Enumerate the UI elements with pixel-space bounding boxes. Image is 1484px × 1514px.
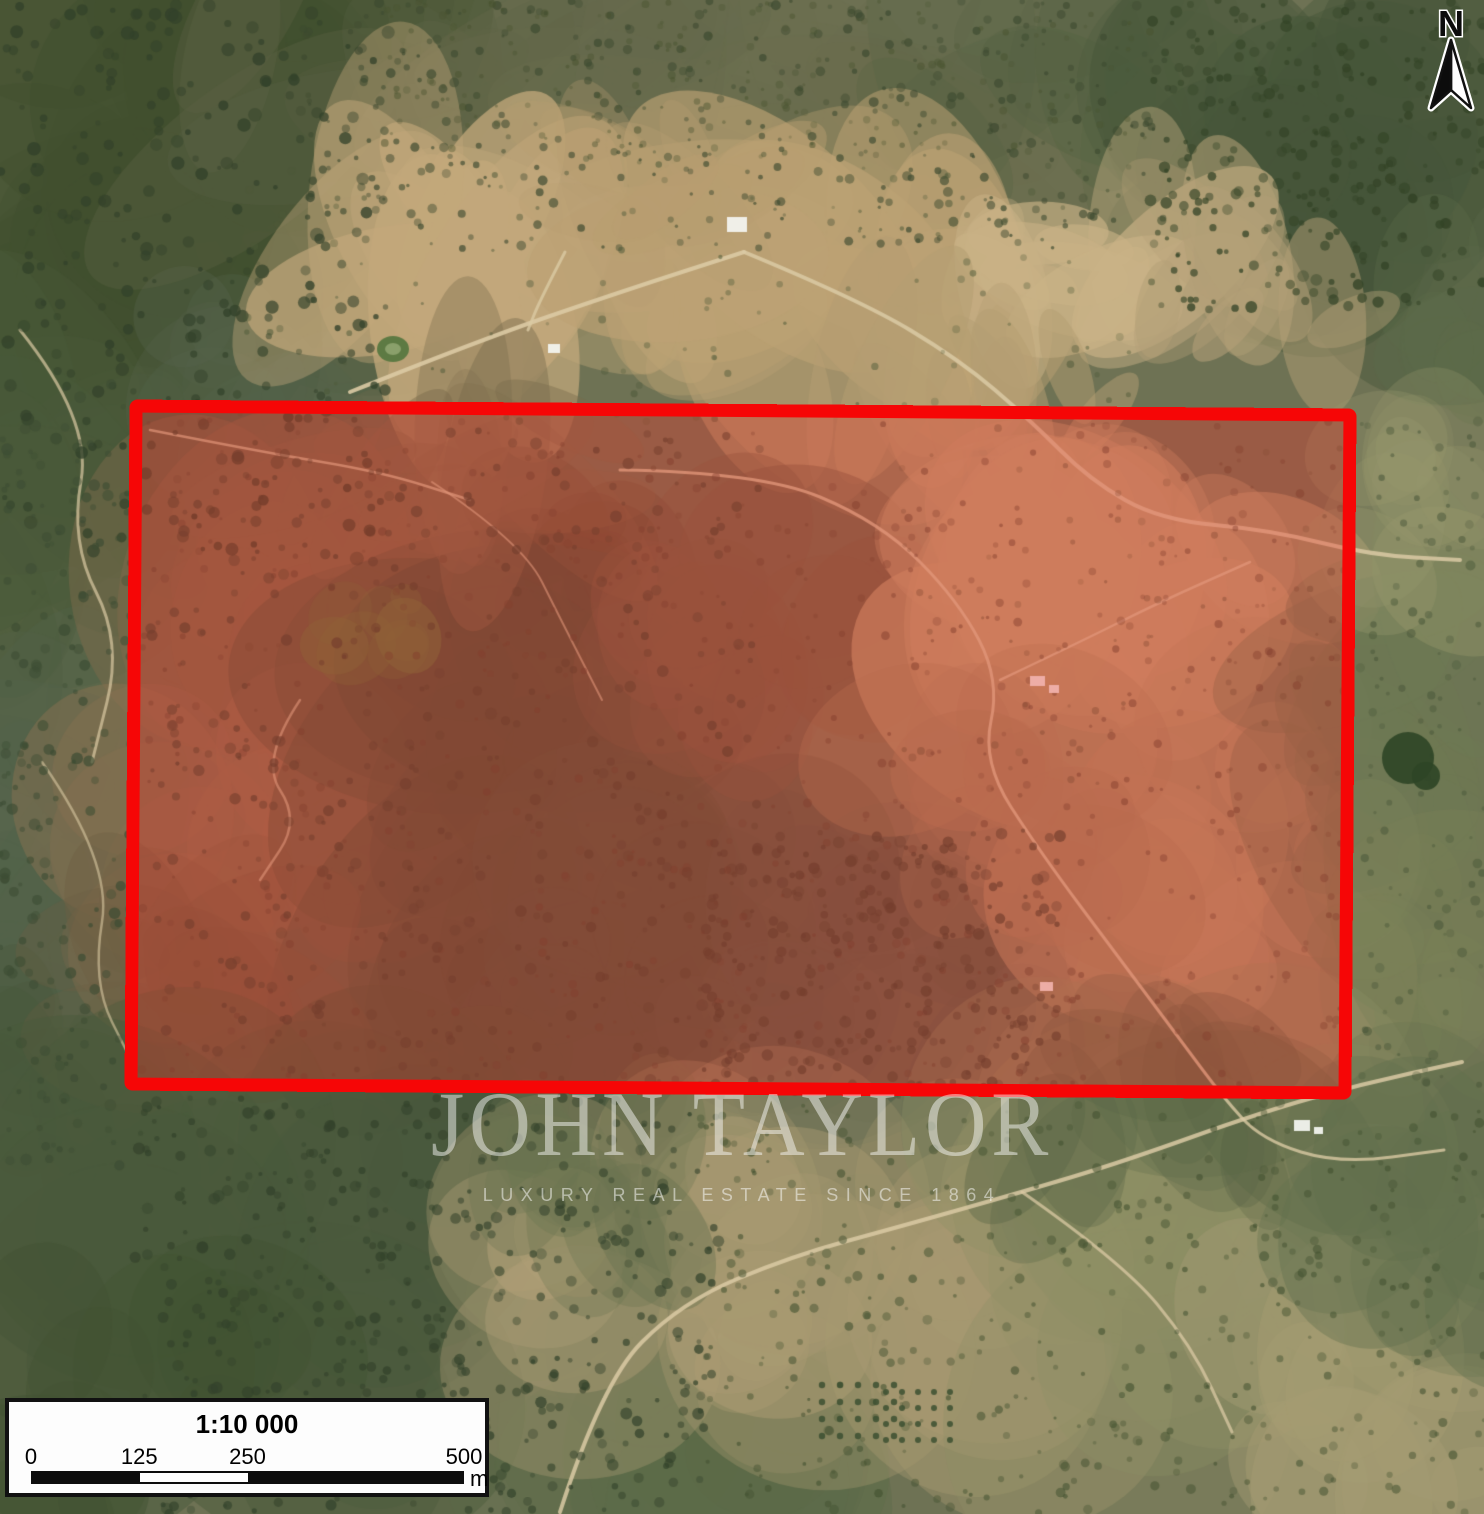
scale-tick-0: 0 <box>25 1444 37 1470</box>
scale-bar: 1:10 000 0 125 250 500 m <box>5 1398 489 1497</box>
scale-ticks: 0 125 250 500 <box>31 1444 464 1468</box>
satellite-map: JOHN TAYLOR LUXURY REAL ESTATE SINCE 186… <box>0 0 1484 1514</box>
scale-tick-250: 250 <box>229 1444 266 1470</box>
scale-segment-white <box>140 1473 247 1482</box>
scale-segment-black-1 <box>33 1473 140 1482</box>
scale-unit: m <box>470 1466 488 1492</box>
scale-segment-black-2 <box>248 1473 463 1482</box>
north-label: N <box>1438 3 1464 44</box>
scale-bar-graphic: m <box>31 1471 464 1484</box>
watermark-title: JOHN TAYLOR <box>52 1078 1432 1170</box>
north-arrow-icon: N <box>1420 0 1482 116</box>
watermark-subtitle: LUXURY REAL ESTATE SINCE 1864 <box>0 1185 1484 1206</box>
property-boundary-overlay <box>124 400 1356 1100</box>
scale-tick-125: 125 <box>121 1444 158 1470</box>
scale-ratio: 1:10 000 <box>9 1409 485 1440</box>
